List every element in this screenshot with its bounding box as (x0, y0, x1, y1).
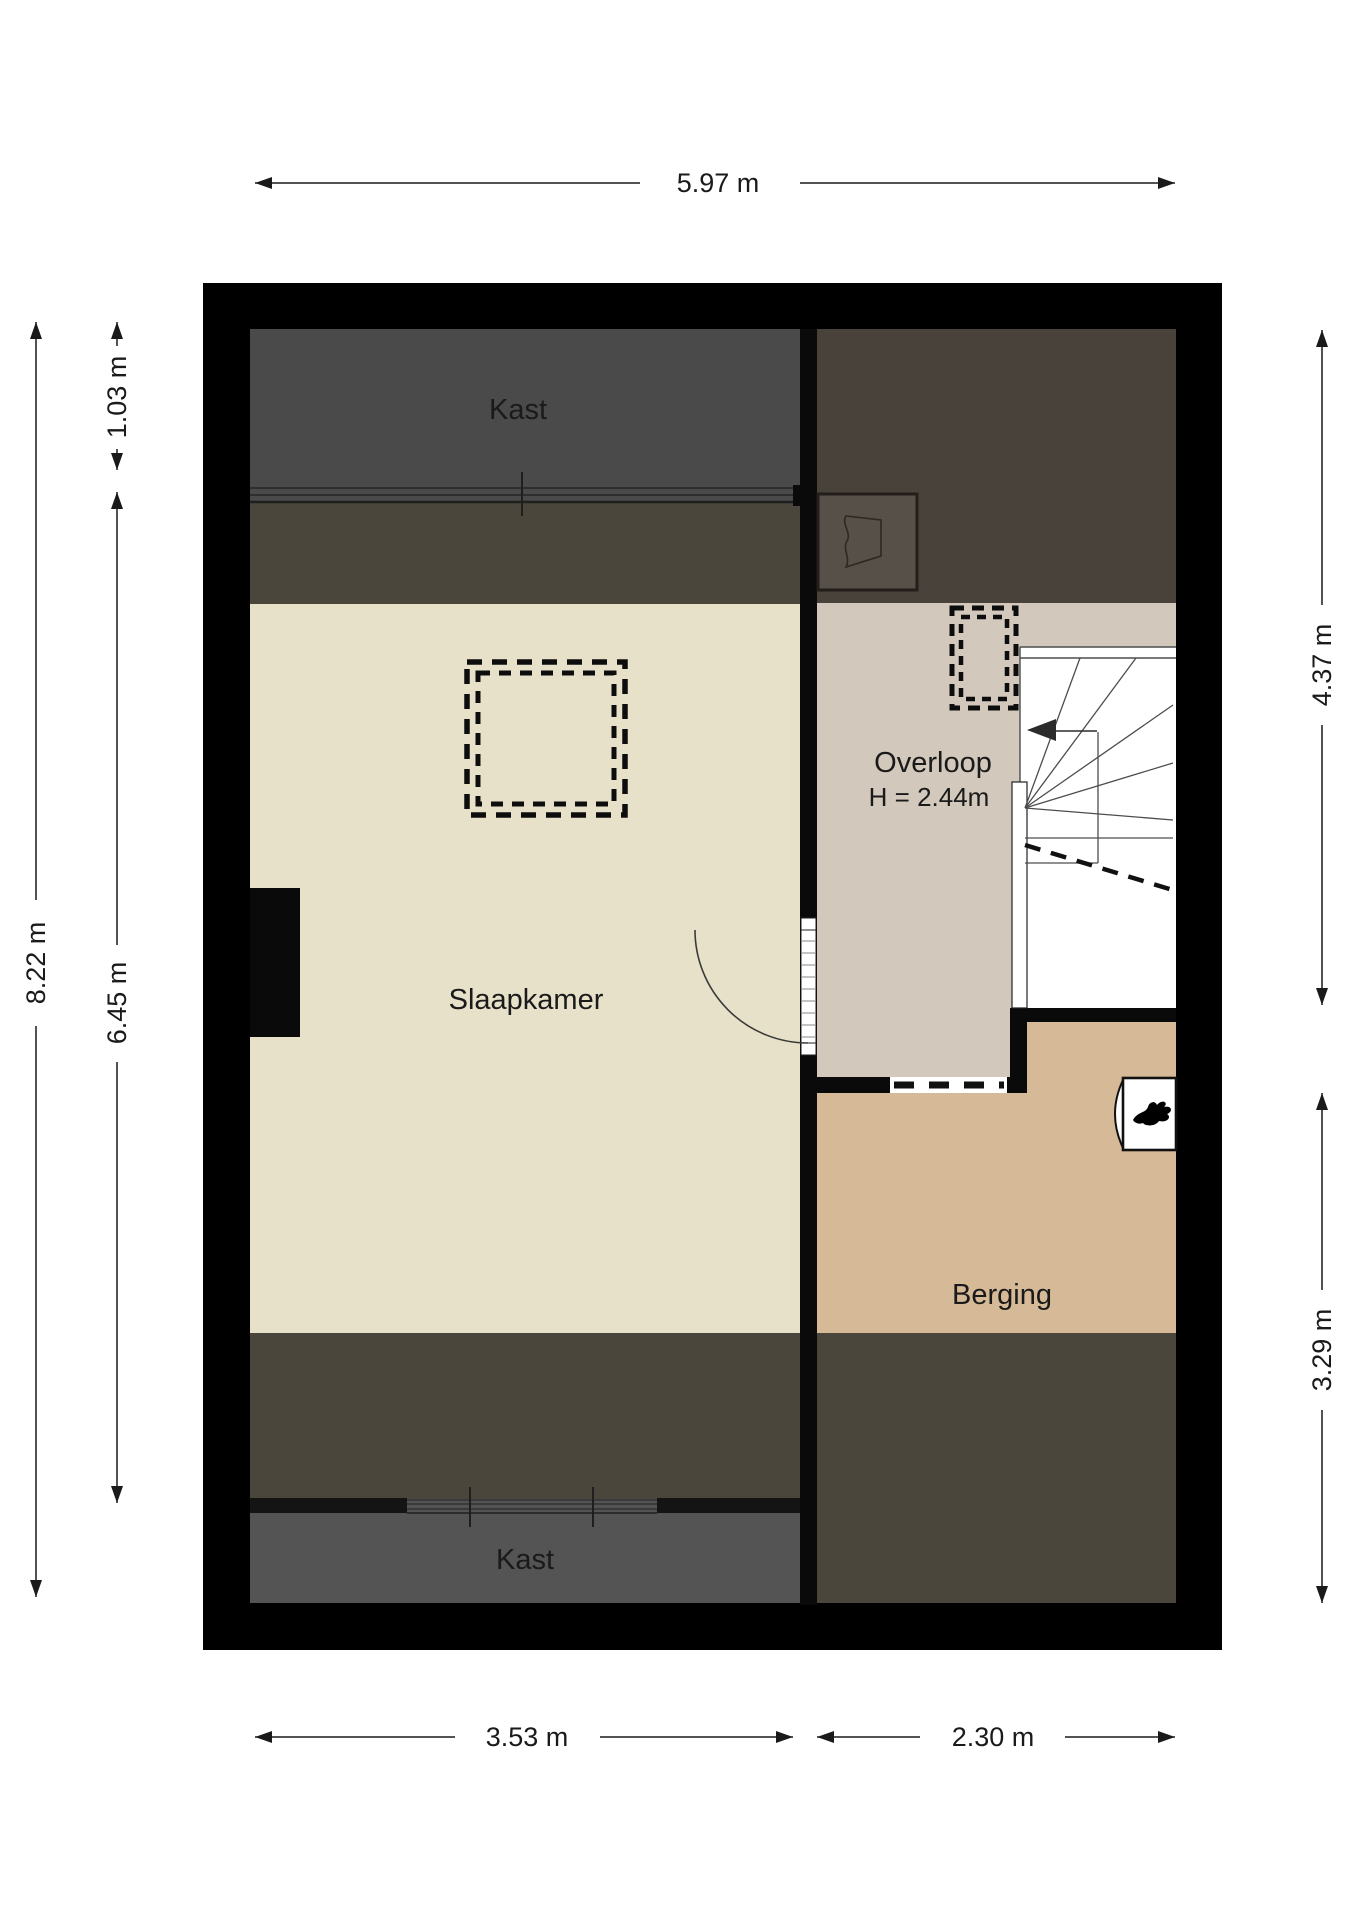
floorplan-drawing: 5.97 m 8.22 m 1.03 m 6.45 m 4.37 m 3.29 … (0, 0, 1358, 1920)
label-overloop-height: H = 2.44m (869, 782, 990, 812)
stair-balustrade (1012, 782, 1027, 1008)
room-slaapkamer-floor (250, 604, 800, 1333)
dim-right-upper-height: 4.37 m (1307, 624, 1337, 707)
label-slaapkamer: Slaapkamer (449, 984, 604, 1016)
dim-right-lower-height: 3.29 m (1307, 1309, 1337, 1392)
berging-opening (890, 1077, 1007, 1093)
sloped-zone-berging (817, 1333, 1176, 1603)
label-kast-bottom: Kast (496, 1544, 554, 1576)
dormer-window (818, 494, 917, 590)
label-kast-top: Kast (489, 394, 547, 426)
room-overloop-floor (817, 647, 1020, 1077)
heater (1115, 1078, 1176, 1150)
dim-bottom-right-width: 2.30 m (952, 1722, 1035, 1752)
dim-slaapkamer-length: 6.45 m (102, 962, 132, 1045)
chimney-block (250, 888, 300, 1037)
door-leaf (801, 930, 816, 1043)
dim-total-height: 8.22 m (21, 922, 51, 1005)
dim-kast-top-depth: 1.03 m (102, 356, 132, 439)
label-overloop: Overloop (874, 747, 992, 779)
dim-bottom-left-width: 3.53 m (486, 1722, 569, 1752)
sloped-zone-bottom (250, 1333, 800, 1499)
dim-total-width: 5.97 m (677, 168, 760, 198)
label-berging: Berging (952, 1279, 1052, 1311)
sloped-zone-top (250, 503, 800, 604)
floorplan-page: 5.97 m 8.22 m 1.03 m 6.45 m 4.37 m 3.29 … (0, 0, 1358, 1920)
